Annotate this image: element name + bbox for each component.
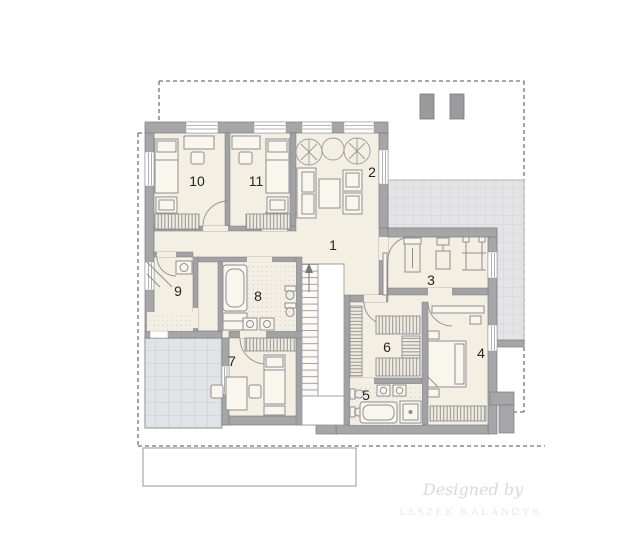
window	[488, 325, 497, 351]
room-label-1: 1	[329, 237, 337, 253]
balcony-left	[145, 338, 222, 428]
window	[302, 122, 332, 133]
bathtub-icon	[360, 402, 397, 423]
stair-well-lower	[302, 396, 344, 425]
room-label-5: 5	[362, 387, 370, 403]
room-label-2: 2	[368, 164, 376, 180]
chimney-left	[420, 94, 434, 119]
room-label-4: 4	[477, 345, 485, 361]
window	[186, 122, 218, 133]
window	[488, 252, 497, 278]
bathroom-5-fixtures	[350, 384, 422, 425]
window	[254, 122, 286, 133]
window	[344, 122, 374, 133]
shower-icon	[400, 401, 421, 423]
room-label-8: 8	[254, 288, 262, 304]
watermark-caps: LESZEK KALANDYK	[399, 506, 543, 518]
room-label-10: 10	[189, 173, 205, 189]
sink-icon	[393, 385, 406, 396]
chimney-right	[450, 94, 464, 119]
chimneys	[420, 94, 464, 119]
window	[145, 152, 154, 186]
room-label-9: 9	[174, 283, 182, 299]
sink-icon	[243, 318, 257, 330]
floor-plan-drawing: 1 2 3 4 5 6 7 8 9 10 11 Designed by LESZ…	[0, 0, 638, 556]
window	[379, 150, 388, 184]
watermark-script: Designed by	[422, 480, 524, 499]
hall-furniture	[383, 253, 387, 295]
sink-icon	[377, 385, 390, 396]
floor-plan-canvas: 1 2 3 4 5 6 7 8 9 10 11 Designed by LESZ…	[0, 0, 638, 556]
room-label-6: 6	[383, 339, 391, 355]
room-label-11: 11	[249, 173, 264, 189]
staircase	[302, 263, 344, 425]
watermark: Designed by LESZEK KALANDYK	[399, 480, 543, 518]
sink-icon	[260, 318, 274, 330]
balcony-bottom	[143, 448, 356, 486]
balcony-door	[150, 331, 168, 338]
stair-well	[318, 264, 344, 396]
room-label-7: 7	[228, 353, 236, 369]
room-label-3: 3	[427, 272, 435, 288]
